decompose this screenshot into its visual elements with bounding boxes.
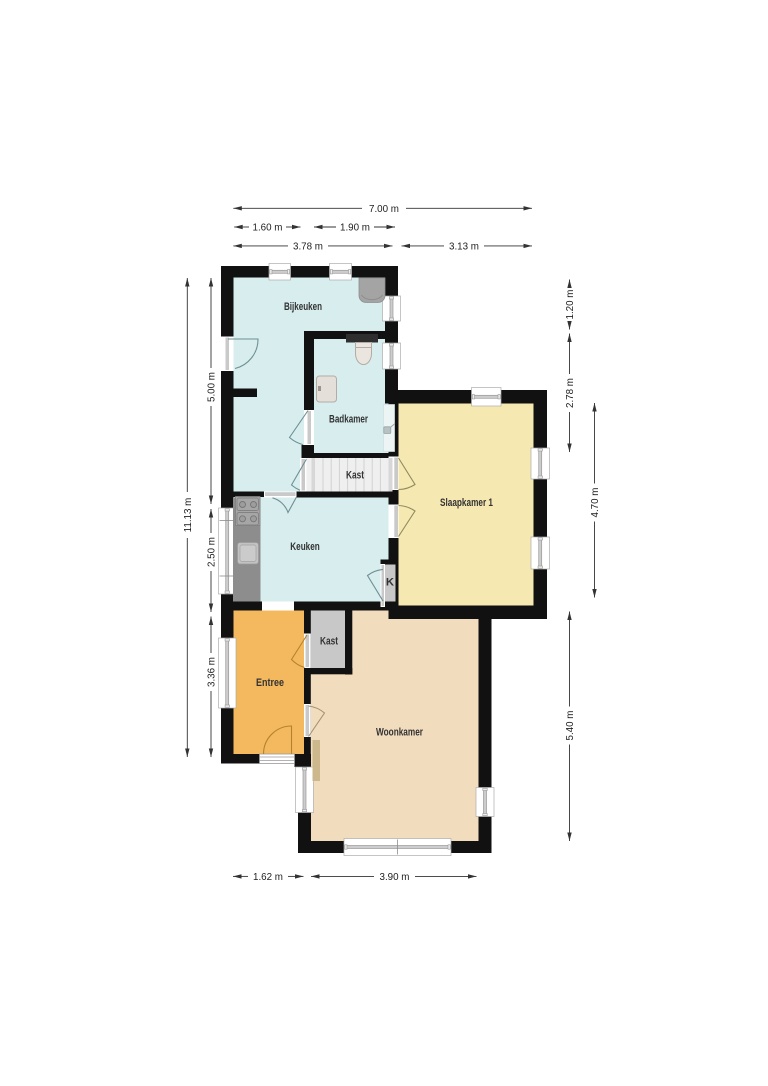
svg-text:1.20 m: 1.20 m (565, 290, 576, 320)
svg-text:3.78 m: 3.78 m (293, 241, 323, 252)
svg-text:11.13 m: 11.13 m (183, 498, 194, 533)
svg-text:1.62 m: 1.62 m (253, 872, 283, 883)
svg-text:1.90 m: 1.90 m (340, 223, 370, 234)
svg-text:3.36 m: 3.36 m (207, 657, 218, 687)
svg-text:Badkamer: Badkamer (329, 414, 368, 426)
svg-text:2.50 m: 2.50 m (207, 537, 218, 567)
svg-text:7.00 m: 7.00 m (369, 204, 399, 215)
svg-text:Kast: Kast (346, 470, 364, 482)
svg-text:Kast: Kast (320, 636, 338, 648)
svg-text:Keuken: Keuken (290, 541, 320, 553)
svg-text:Entree: Entree (256, 677, 284, 689)
svg-text:3.13 m: 3.13 m (449, 241, 479, 252)
svg-text:Bijkeuken: Bijkeuken (284, 301, 322, 313)
svg-text:4.70 m: 4.70 m (590, 488, 601, 518)
svg-text:Woonkamer: Woonkamer (376, 727, 423, 739)
svg-text:K: K (386, 577, 395, 589)
svg-text:Slaapkamer 1: Slaapkamer 1 (440, 497, 493, 509)
svg-text:5.00 m: 5.00 m (207, 372, 218, 402)
svg-text:2.78 m: 2.78 m (565, 378, 576, 408)
svg-text:1.60 m: 1.60 m (253, 223, 283, 234)
svg-text:5.40 m: 5.40 m (565, 711, 576, 741)
svg-text:3.90 m: 3.90 m (380, 872, 410, 883)
